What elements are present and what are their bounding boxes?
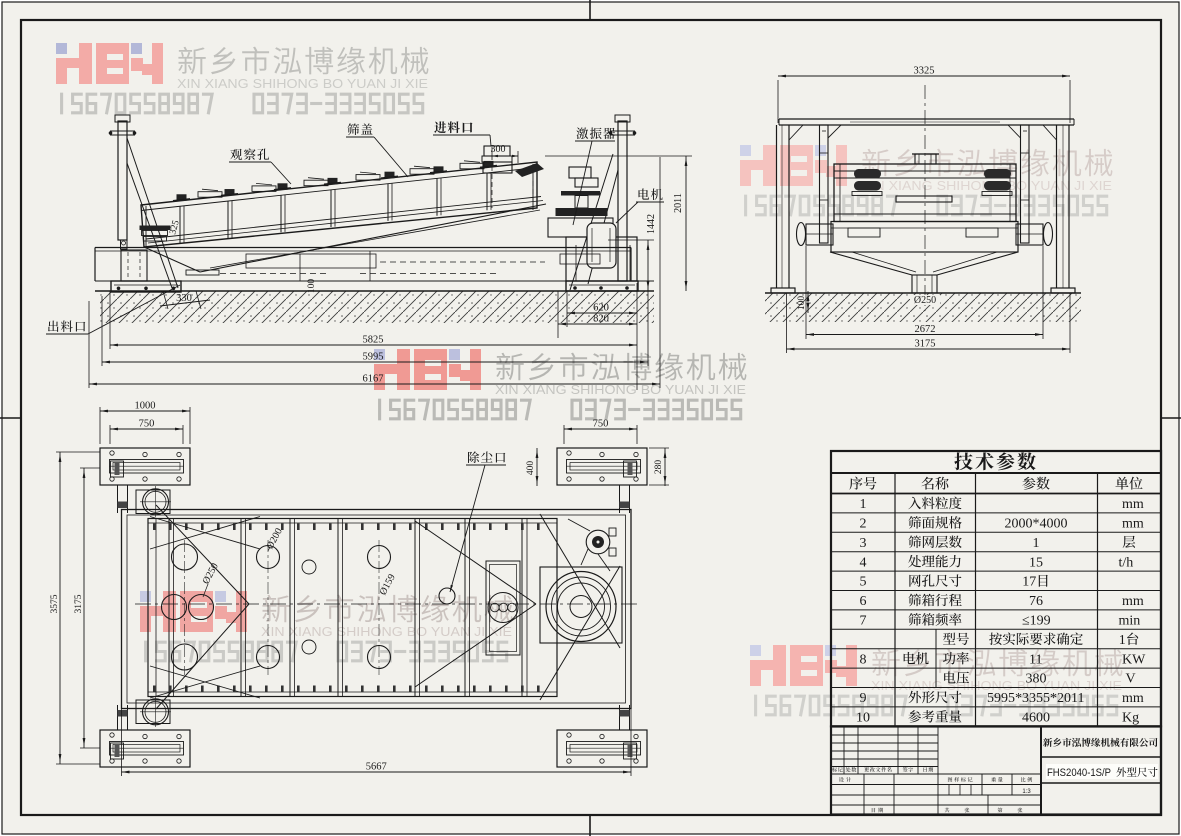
svg-text:100: 100 [797,296,807,311]
svg-text:2000*4000: 2000*4000 [1005,517,1068,532]
svg-text:3: 3 [860,536,867,551]
svg-text:mm: mm [1122,691,1144,706]
svg-text:XIN XIANG SHIHONG BO YUAN JI X: XIN XIANG SHIHONG BO YUAN JI XIE [177,77,428,91]
svg-text:7: 7 [860,614,867,629]
svg-text:100: 100 [307,279,317,294]
svg-text:min: min [1119,614,1141,629]
svg-text:1:3: 1:3 [1022,789,1031,795]
svg-text:t/h: t/h [1119,555,1134,570]
svg-text:9: 9 [860,691,867,706]
svg-text:2672: 2672 [915,324,936,335]
svg-text:820: 820 [593,314,609,325]
svg-text:6167: 6167 [363,374,384,385]
svg-text:11: 11 [1029,652,1042,667]
svg-text:620: 620 [593,303,609,314]
svg-text:3575: 3575 [50,594,60,613]
svg-text:17: 17 [1022,575,1036,590]
svg-text:330: 330 [176,293,192,304]
svg-text:76: 76 [1029,594,1043,609]
svg-text:3325: 3325 [914,66,935,77]
svg-text:V: V [1126,672,1136,687]
svg-text:280: 280 [654,460,664,475]
svg-text:5825: 5825 [363,335,384,346]
svg-text:1: 1 [860,497,867,512]
svg-text:1000: 1000 [135,401,156,412]
svg-text:3175: 3175 [915,339,936,350]
svg-text:≤199: ≤199 [1022,614,1051,629]
svg-text:10: 10 [856,711,870,726]
svg-text:1: 1 [1119,633,1126,648]
svg-text:KW: KW [1122,652,1146,667]
svg-text:mm: mm [1122,594,1144,609]
svg-text:4: 4 [860,555,867,570]
svg-text:5667: 5667 [366,762,387,773]
svg-text:Ø250: Ø250 [914,295,936,306]
svg-text:6: 6 [860,594,867,609]
svg-text:Kg: Kg [1122,711,1139,726]
svg-text:400: 400 [526,461,536,476]
svg-text:mm: mm [1122,517,1144,532]
svg-text:2: 2 [860,517,867,532]
svg-text:XIN XIANG SHIHONG BO YUAN JI X: XIN XIANG SHIHONG BO YUAN JI XIE [495,383,746,397]
svg-text:1: 1 [1033,536,1040,551]
svg-text:8: 8 [860,652,867,667]
svg-text:750: 750 [593,419,609,430]
svg-text:XIN XIANG SHIHONG BO YUAN JI X: XIN XIANG SHIHONG BO YUAN JI XIE [261,625,512,639]
svg-text:1442: 1442 [646,214,657,234]
svg-text:15: 15 [1029,555,1043,570]
svg-text:5: 5 [860,575,867,590]
svg-text:5995*3355*2011: 5995*3355*2011 [987,691,1084,706]
svg-text:2011: 2011 [673,193,684,213]
svg-text:FHS2040-1S/P: FHS2040-1S/P [1047,767,1111,779]
svg-text:750: 750 [139,419,155,430]
svg-text:mm: mm [1122,497,1144,512]
svg-text:5995: 5995 [363,352,384,363]
svg-text:300: 300 [491,144,506,155]
svg-text:380: 380 [1026,672,1047,687]
svg-text:3175: 3175 [74,594,84,613]
svg-text:4600: 4600 [1022,711,1050,726]
